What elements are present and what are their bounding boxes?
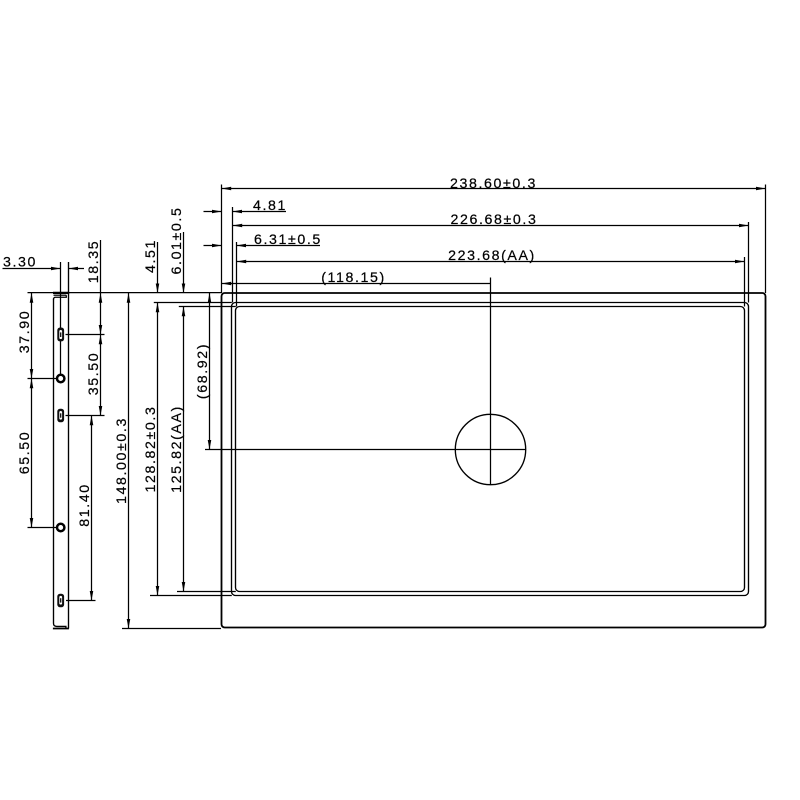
svg-text:81.40: 81.40 — [77, 483, 93, 527]
svg-text:18.35: 18.35 — [86, 240, 102, 284]
svg-text:(118.15): (118.15) — [321, 270, 386, 286]
svg-text:37.90: 37.90 — [17, 310, 33, 354]
svg-text:125.82(AA): 125.82(AA) — [169, 405, 185, 493]
svg-text:(68.92): (68.92) — [195, 343, 211, 399]
svg-text:6.31±0.5: 6.31±0.5 — [254, 232, 322, 248]
svg-text:6.01±0.5: 6.01±0.5 — [169, 207, 185, 275]
svg-text:238.60±0.3: 238.60±0.3 — [450, 176, 537, 192]
svg-text:226.68±0.3: 226.68±0.3 — [451, 212, 538, 228]
svg-text:4.81: 4.81 — [253, 198, 287, 214]
svg-text:223.68(AA): 223.68(AA) — [448, 248, 536, 264]
svg-text:65.50: 65.50 — [17, 431, 33, 475]
svg-text:3.30: 3.30 — [3, 255, 37, 271]
svg-text:148.00±0.3: 148.00±0.3 — [114, 417, 130, 504]
svg-text:4.51: 4.51 — [143, 239, 159, 273]
svg-text:35.50: 35.50 — [86, 352, 102, 396]
svg-text:128.82±0.3: 128.82±0.3 — [143, 406, 159, 493]
